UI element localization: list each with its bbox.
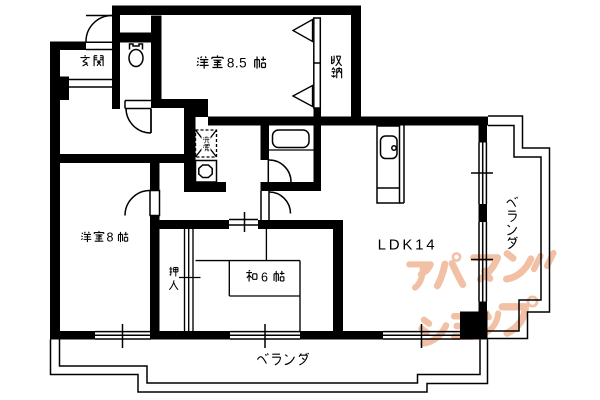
svg-text:8: 8 <box>107 231 114 245</box>
svg-text:8.5: 8.5 <box>227 56 247 71</box>
svg-text:6: 6 <box>261 271 268 285</box>
svg-text:LDK14: LDK14 <box>378 237 438 254</box>
